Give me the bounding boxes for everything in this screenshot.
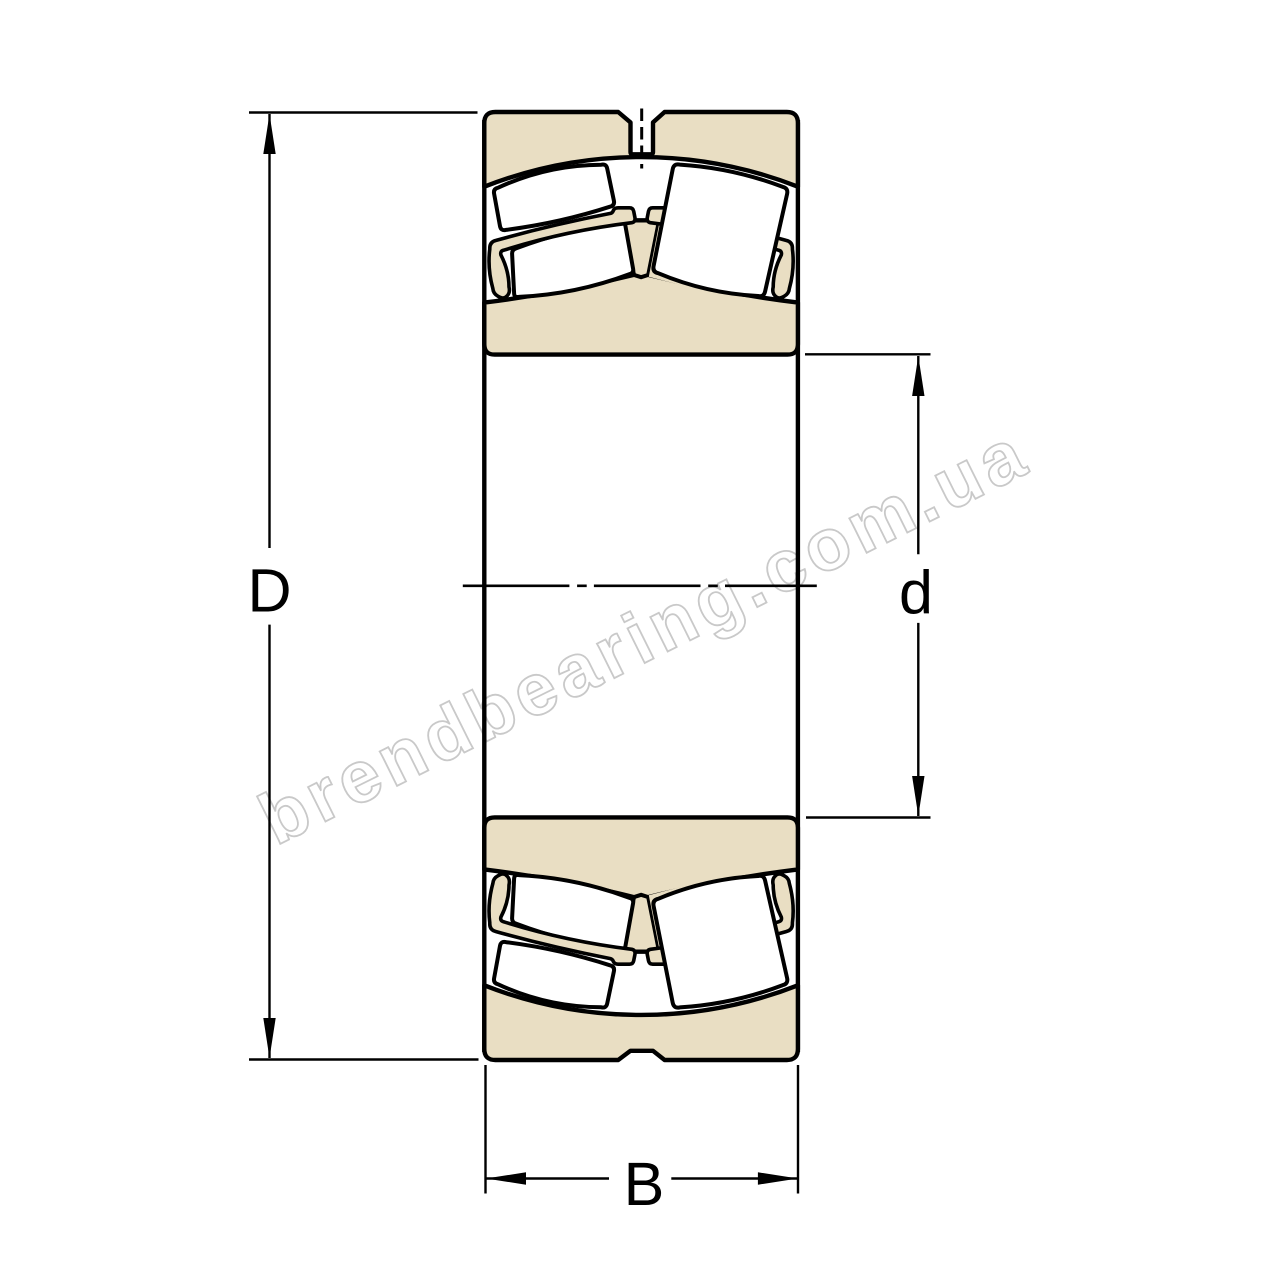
- svg-text:D: D: [247, 557, 291, 625]
- svg-text:B: B: [624, 1150, 665, 1218]
- svg-text:d: d: [899, 559, 933, 627]
